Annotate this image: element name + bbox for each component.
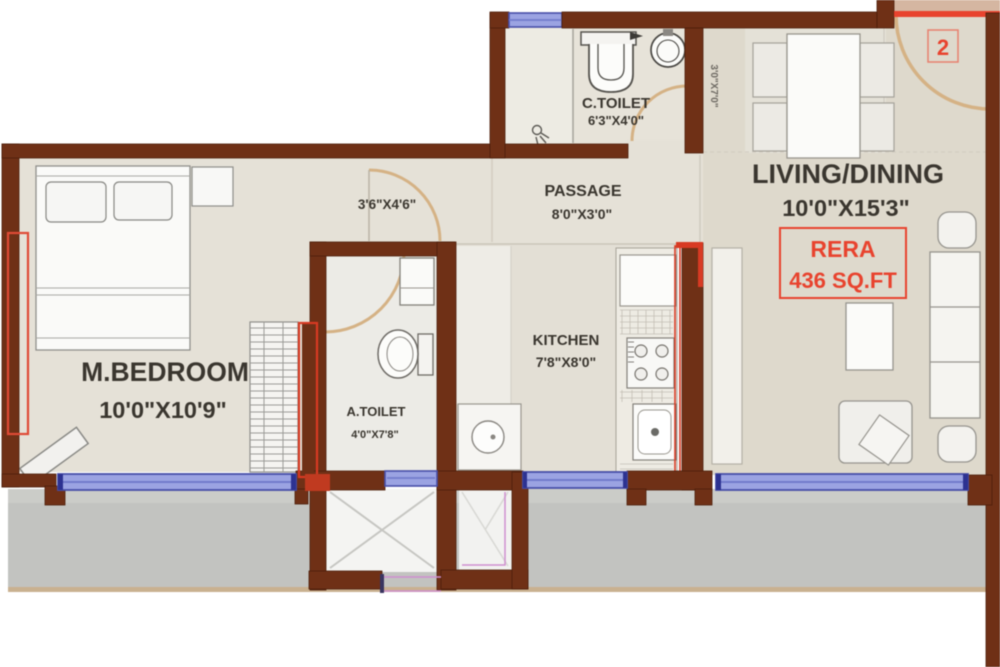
svg-text:3'6"X4'6": 3'6"X4'6" bbox=[358, 197, 416, 212]
svg-text:436 SQ.FT: 436 SQ.FT bbox=[789, 268, 897, 293]
svg-text:LIVING/DINING: LIVING/DINING bbox=[752, 159, 944, 189]
svg-text:8'0"X3'0": 8'0"X3'0" bbox=[552, 206, 612, 222]
svg-text:M.BEDROOM: M.BEDROOM bbox=[81, 357, 249, 387]
svg-text:A.TOILET: A.TOILET bbox=[347, 404, 406, 419]
svg-text:2: 2 bbox=[937, 35, 949, 60]
svg-text:10'0"X15'3": 10'0"X15'3" bbox=[782, 195, 910, 221]
svg-text:C.TOILET: C.TOILET bbox=[582, 95, 650, 112]
svg-text:6'3"X4'0": 6'3"X4'0" bbox=[588, 113, 644, 128]
svg-text:4'0"X7'8": 4'0"X7'8" bbox=[351, 429, 398, 441]
svg-text:KITCHEN: KITCHEN bbox=[533, 332, 600, 349]
svg-text:RERA: RERA bbox=[810, 236, 875, 262]
svg-text:7'8"X8'0": 7'8"X8'0" bbox=[536, 354, 596, 370]
svg-text:10'0"X10'9": 10'0"X10'9" bbox=[99, 397, 227, 423]
svg-text:PASSAGE: PASSAGE bbox=[544, 183, 621, 200]
svg-text:3'0"X7'0": 3'0"X7'0" bbox=[708, 64, 719, 107]
